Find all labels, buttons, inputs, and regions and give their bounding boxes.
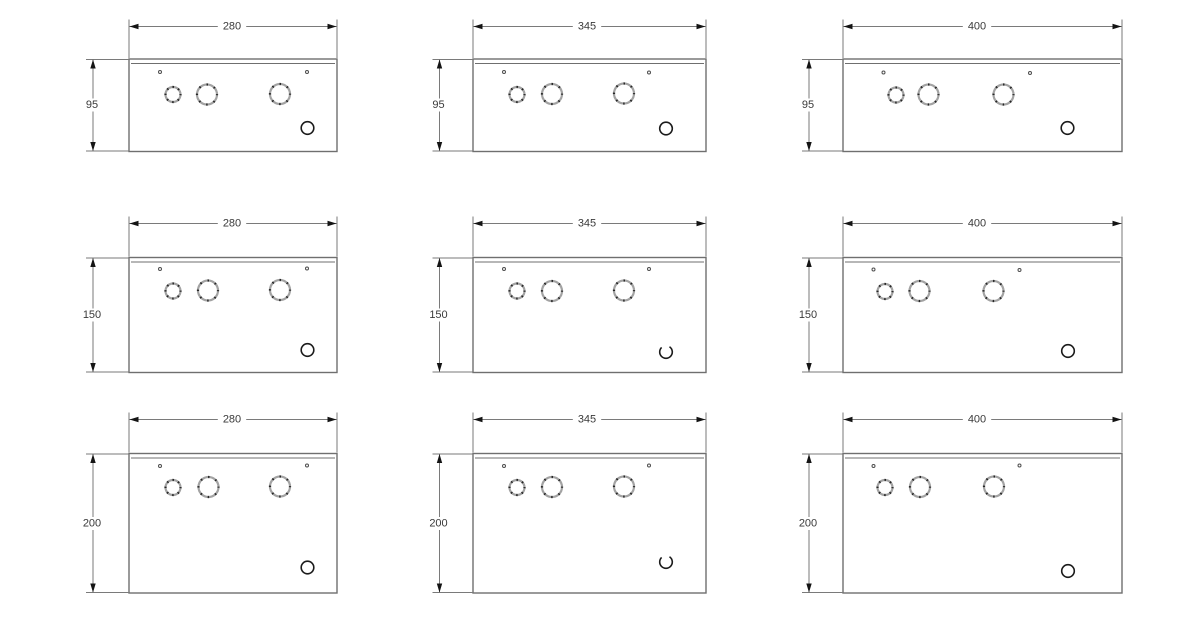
panel-outline: [473, 59, 706, 152]
width-dimension-label: 345: [578, 218, 596, 230]
height-dimension-label: 200: [429, 518, 447, 530]
width-dimension-label: 345: [578, 414, 596, 426]
width-dimension-label: 280: [223, 218, 241, 230]
height-dimension-label: 95: [802, 99, 814, 111]
width-dimension-label: 400: [968, 414, 986, 426]
drawing-sheet: 2809534595400952801503451504001502802003…: [0, 0, 1200, 633]
height-dimension-label: 150: [83, 309, 101, 321]
height-dimension-label: 95: [86, 99, 98, 111]
width-dimension-label: 400: [968, 21, 986, 33]
height-dimension-label: 150: [429, 309, 447, 321]
width-dimension-label: 345: [578, 21, 596, 33]
height-dimension-label: 200: [799, 518, 817, 530]
width-dimension-label: 280: [223, 21, 241, 33]
width-dimension-label: 400: [968, 218, 986, 230]
width-dimension-label: 280: [223, 414, 241, 426]
height-dimension-label: 95: [432, 99, 444, 111]
height-dimension-label: 200: [83, 518, 101, 530]
panel-outline: [843, 258, 1122, 373]
panel-outline: [843, 454, 1122, 594]
cad-drawing-canvas: 2809534595400952801503451504001502802003…: [0, 0, 1200, 633]
height-dimension-label: 150: [799, 309, 817, 321]
panel-outline: [473, 454, 706, 594]
panel-outline: [129, 454, 337, 594]
